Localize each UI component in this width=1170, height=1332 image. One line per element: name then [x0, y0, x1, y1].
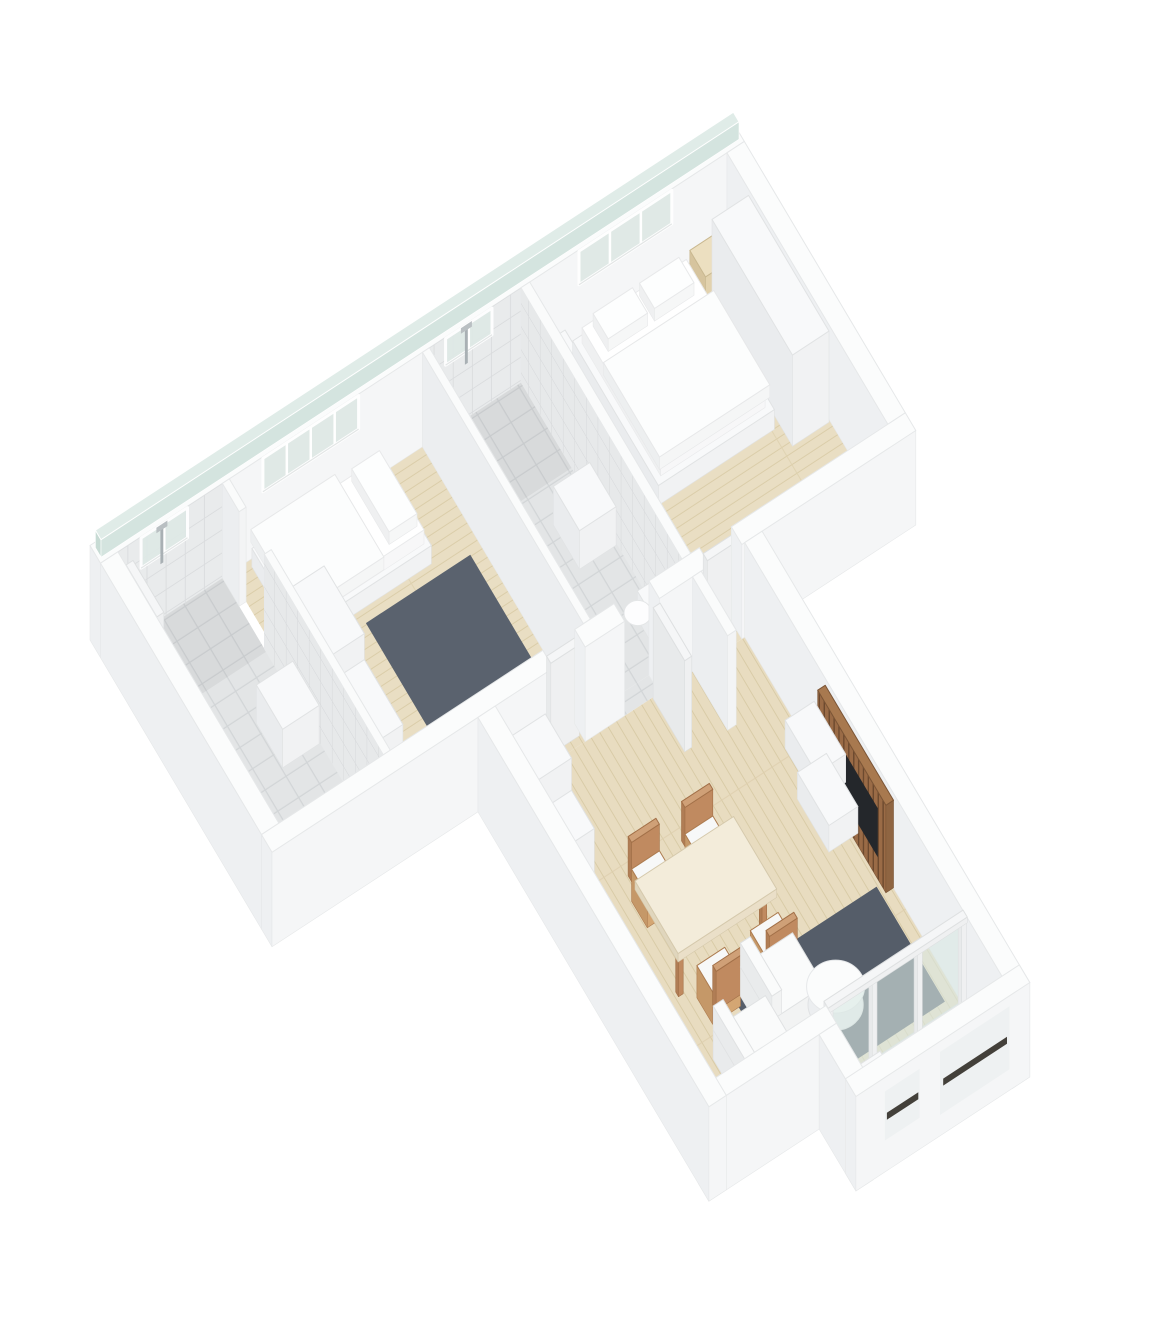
bathroom2-toilet-bowl	[624, 600, 652, 625]
south-wall-b	[575, 604, 625, 742]
shower-rod-bathroom2	[465, 325, 468, 365]
floor-plan-render-canvas	[0, 0, 1170, 1332]
shower-rod-bathroom1	[160, 525, 163, 565]
apartment-3d-floor-plan	[0, 0, 1170, 1332]
